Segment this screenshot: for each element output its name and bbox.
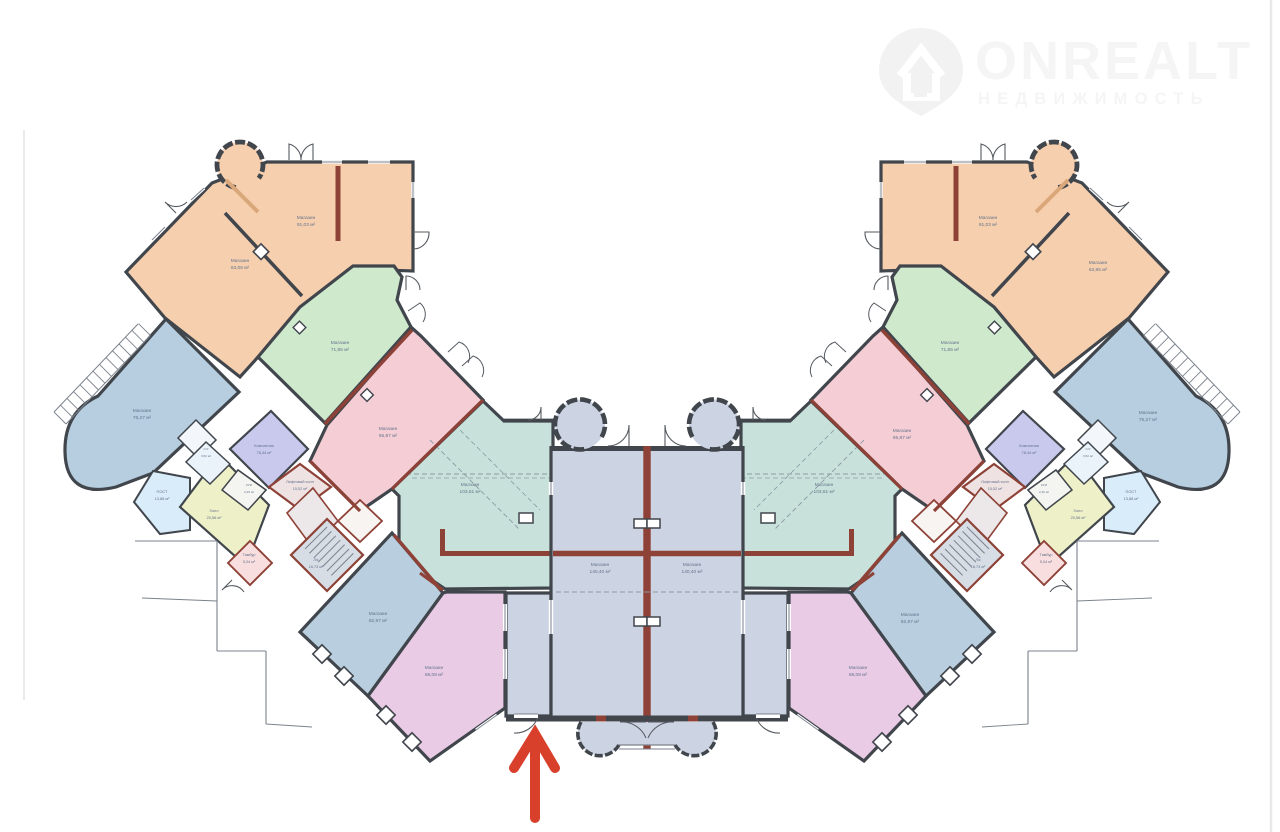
svg-text:82,97 м²: 82,97 м² xyxy=(901,619,920,625)
svg-text:Магазин: Магазин xyxy=(849,665,868,671)
svg-text:Магазин: Магазин xyxy=(369,611,388,617)
svg-text:103,61 м²: 103,61 м² xyxy=(460,489,481,495)
svg-text:Холл: Холл xyxy=(209,508,218,513)
svg-text:Магазин: Магазин xyxy=(901,612,920,618)
svg-text:13,88 м²: 13,88 м² xyxy=(155,496,170,501)
svg-text:68,08 м²: 68,08 м² xyxy=(425,672,444,678)
svg-text:71,85 м²: 71,85 м² xyxy=(331,347,350,353)
svg-text:Холл: Холл xyxy=(1073,508,1082,513)
svg-text:140,40 м²: 140,40 м² xyxy=(682,569,703,575)
svg-text:Магазин: Магазин xyxy=(425,665,444,671)
svg-text:2,46 м²: 2,46 м² xyxy=(244,490,254,494)
svg-text:НЕДВИЖИМОСТЬ: НЕДВИЖИМОСТЬ xyxy=(978,90,1210,108)
svg-text:Тамбур: Тамбур xyxy=(243,553,256,557)
svg-text:91,03 м²: 91,03 м² xyxy=(979,222,998,228)
svg-text:68,08 м²: 68,08 м² xyxy=(849,672,868,678)
svg-text:Магазин: Магазин xyxy=(591,562,610,568)
svg-text:140,40 м²: 140,40 м² xyxy=(590,569,611,575)
svg-text:Магазин: Магазин xyxy=(297,215,316,221)
svg-text:КУИ: КУИ xyxy=(1041,483,1047,487)
svg-text:Магазин: Магазин xyxy=(331,340,350,346)
svg-text:82,97 м²: 82,97 м² xyxy=(369,618,388,624)
svg-text:78,44 м²: 78,44 м² xyxy=(1022,450,1037,455)
svg-text:76,27 м²: 76,27 м² xyxy=(1139,417,1158,423)
svg-text:Комнатная: Комнатная xyxy=(1019,443,1039,448)
svg-text:Магазин: Магазин xyxy=(133,408,152,414)
svg-text:Л/к: Л/к xyxy=(975,558,981,562)
svg-text:16,73 м²: 16,73 м² xyxy=(971,565,986,569)
svg-text:20,56 м²: 20,56 м² xyxy=(1071,515,1086,520)
svg-text:ПОСТ: ПОСТ xyxy=(157,489,169,494)
svg-text:20,56 м²: 20,56 м² xyxy=(207,515,222,520)
svg-text:15,52 м²: 15,52 м² xyxy=(988,487,1003,491)
svg-text:63,85 м²: 63,85 м² xyxy=(1089,267,1108,273)
svg-text:КУИ: КУИ xyxy=(246,483,252,487)
svg-text:76,27 м²: 76,27 м² xyxy=(133,415,152,421)
svg-text:103,61 м²: 103,61 м² xyxy=(814,489,835,495)
svg-text:Магазин: Магазин xyxy=(461,482,480,488)
svg-text:Магазин: Магазин xyxy=(893,428,912,434)
svg-text:Магазин: Магазин xyxy=(979,215,998,221)
svg-text:13,88 м²: 13,88 м² xyxy=(1124,496,1139,501)
svg-text:65,87 м²: 65,87 м² xyxy=(379,433,398,439)
svg-text:Магазин: Магазин xyxy=(1089,260,1108,266)
svg-text:63,08 м²: 63,08 м² xyxy=(231,265,250,271)
svg-text:5,04 м²: 5,04 м² xyxy=(243,560,256,564)
svg-text:15,52 м²: 15,52 м² xyxy=(293,487,308,491)
svg-text:71,85 м²: 71,85 м² xyxy=(941,347,960,353)
svg-text:ONREALT: ONREALT xyxy=(975,31,1253,91)
svg-text:Магазин: Магазин xyxy=(231,258,250,264)
svg-text:78,44 м²: 78,44 м² xyxy=(257,450,272,455)
svg-text:С/У: С/У xyxy=(1085,447,1090,451)
svg-text:Лифтовый холл: Лифтовый холл xyxy=(981,480,1009,484)
svg-text:Комнатная: Комнатная xyxy=(254,443,274,448)
svg-text:Лифтовый холл: Лифтовый холл xyxy=(286,480,314,484)
svg-text:91,03 м²: 91,03 м² xyxy=(297,222,316,228)
svg-text:16,73 м²: 16,73 м² xyxy=(309,565,324,569)
svg-text:3,52 м²: 3,52 м² xyxy=(201,454,211,458)
svg-text:Тамбур: Тамбур xyxy=(1040,553,1053,557)
svg-text:Магазин: Магазин xyxy=(941,340,960,346)
svg-text:2,46 м²: 2,46 м² xyxy=(1039,490,1049,494)
svg-text:Магазин: Магазин xyxy=(1139,410,1158,416)
svg-text:Л/к: Л/к xyxy=(313,558,319,562)
svg-text:3,52 м²: 3,52 м² xyxy=(1083,454,1093,458)
svg-text:Магазин: Магазин xyxy=(815,482,834,488)
svg-text:С/У: С/У xyxy=(203,447,208,451)
svg-text:5,04 м²: 5,04 м² xyxy=(1040,560,1053,564)
svg-text:Магазин: Магазин xyxy=(683,562,702,568)
svg-text:65,87 м²: 65,87 м² xyxy=(893,435,912,441)
svg-text:ПОСТ: ПОСТ xyxy=(1126,489,1138,494)
svg-text:Магазин: Магазин xyxy=(379,426,398,432)
